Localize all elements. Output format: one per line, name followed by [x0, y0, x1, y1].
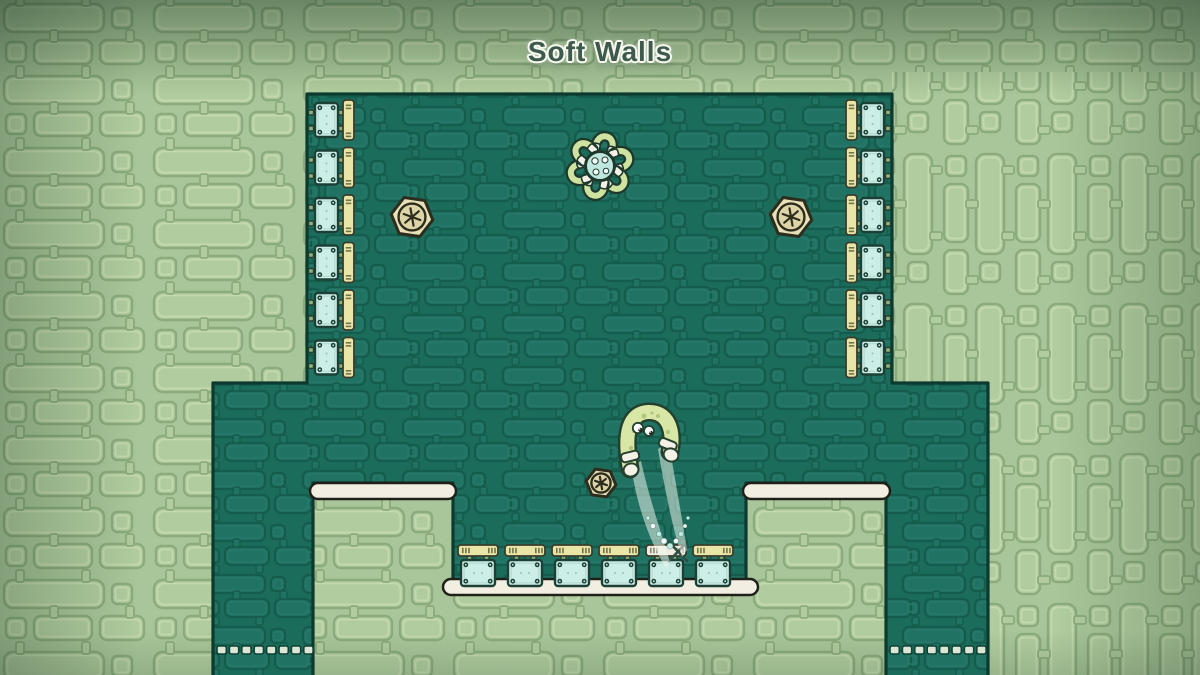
soft-wall-block	[309, 148, 355, 188]
soft-wall-block	[309, 100, 355, 140]
game-canvas	[0, 0, 1200, 675]
soft-wall-block	[309, 195, 355, 235]
soft-wall-block	[846, 100, 891, 140]
level-title: Soft Walls	[0, 36, 1200, 68]
soft-wall-block	[458, 545, 498, 586]
pillar-cap-right	[743, 483, 890, 499]
soft-wall-block	[309, 338, 355, 378]
soft-wall-block	[309, 243, 355, 283]
soft-wall-block	[846, 148, 891, 188]
game-screen[interactable]: Soft Walls	[0, 0, 1200, 675]
vignette-right	[1055, 0, 1200, 675]
soft-wall-block	[693, 545, 733, 586]
soft-wall-block	[846, 195, 891, 235]
soft-wall-block	[846, 243, 891, 283]
pillar-cap-left	[310, 483, 456, 499]
soft-wall-block	[846, 338, 891, 378]
soft-wall-block	[309, 290, 355, 330]
vignette-bottom	[0, 630, 1200, 675]
soft-wall-block	[599, 545, 639, 586]
soft-wall-block	[846, 290, 891, 330]
soft-wall-block	[552, 545, 592, 586]
bolt-icon	[586, 469, 616, 497]
vignette-left	[0, 0, 140, 675]
soft-wall-block	[505, 545, 545, 586]
